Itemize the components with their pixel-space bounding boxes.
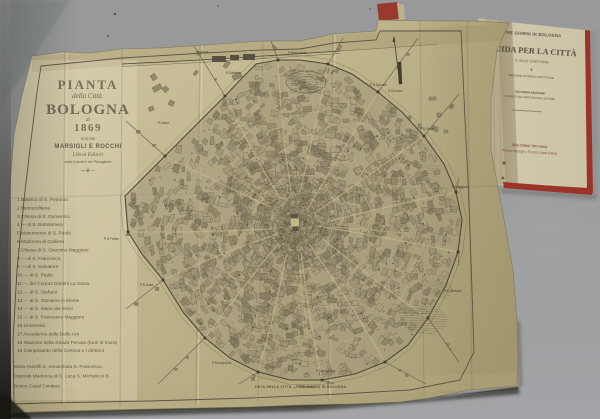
svg-text:P.S.Donato: P.S.Donato (370, 83, 387, 87)
svg-text:UNTA DELLA CITTA — TRE GIORNI: UNTA DELLA CITTA — TRE GIORNI IN BOLOGNA (255, 385, 347, 389)
svg-text:P.S.Isaia: P.S.Isaia (140, 283, 153, 287)
svg-text:P.S.Stefano: P.S.Stefano (444, 289, 462, 293)
svg-text:P.Saragozza: P.Saragozza (212, 361, 231, 365)
svg-text:S.Donnino: S.Donnino (388, 89, 403, 93)
svg-text:EDITORI: EDITORI (81, 137, 96, 141)
svg-text:P.Lame: P.Lame (158, 121, 169, 125)
svg-text:P.Castiglione: P.Castiglione (316, 369, 336, 373)
svg-text:—❦—: —❦— (81, 168, 95, 174)
svg-text:P.Mascarella: P.Mascarella (288, 51, 307, 55)
svg-text:P.S.Vitale: P.S.Vitale (420, 127, 435, 131)
svg-text:P.Galliera: P.Galliera (226, 71, 241, 75)
svg-text:Stazione: Stazione (196, 50, 209, 54)
svg-text:P.Maggiore: P.Maggiore (452, 185, 469, 189)
svg-text:❦: ❦ (530, 68, 533, 72)
svg-text:P.S.Felice: P.S.Felice (104, 237, 119, 241)
